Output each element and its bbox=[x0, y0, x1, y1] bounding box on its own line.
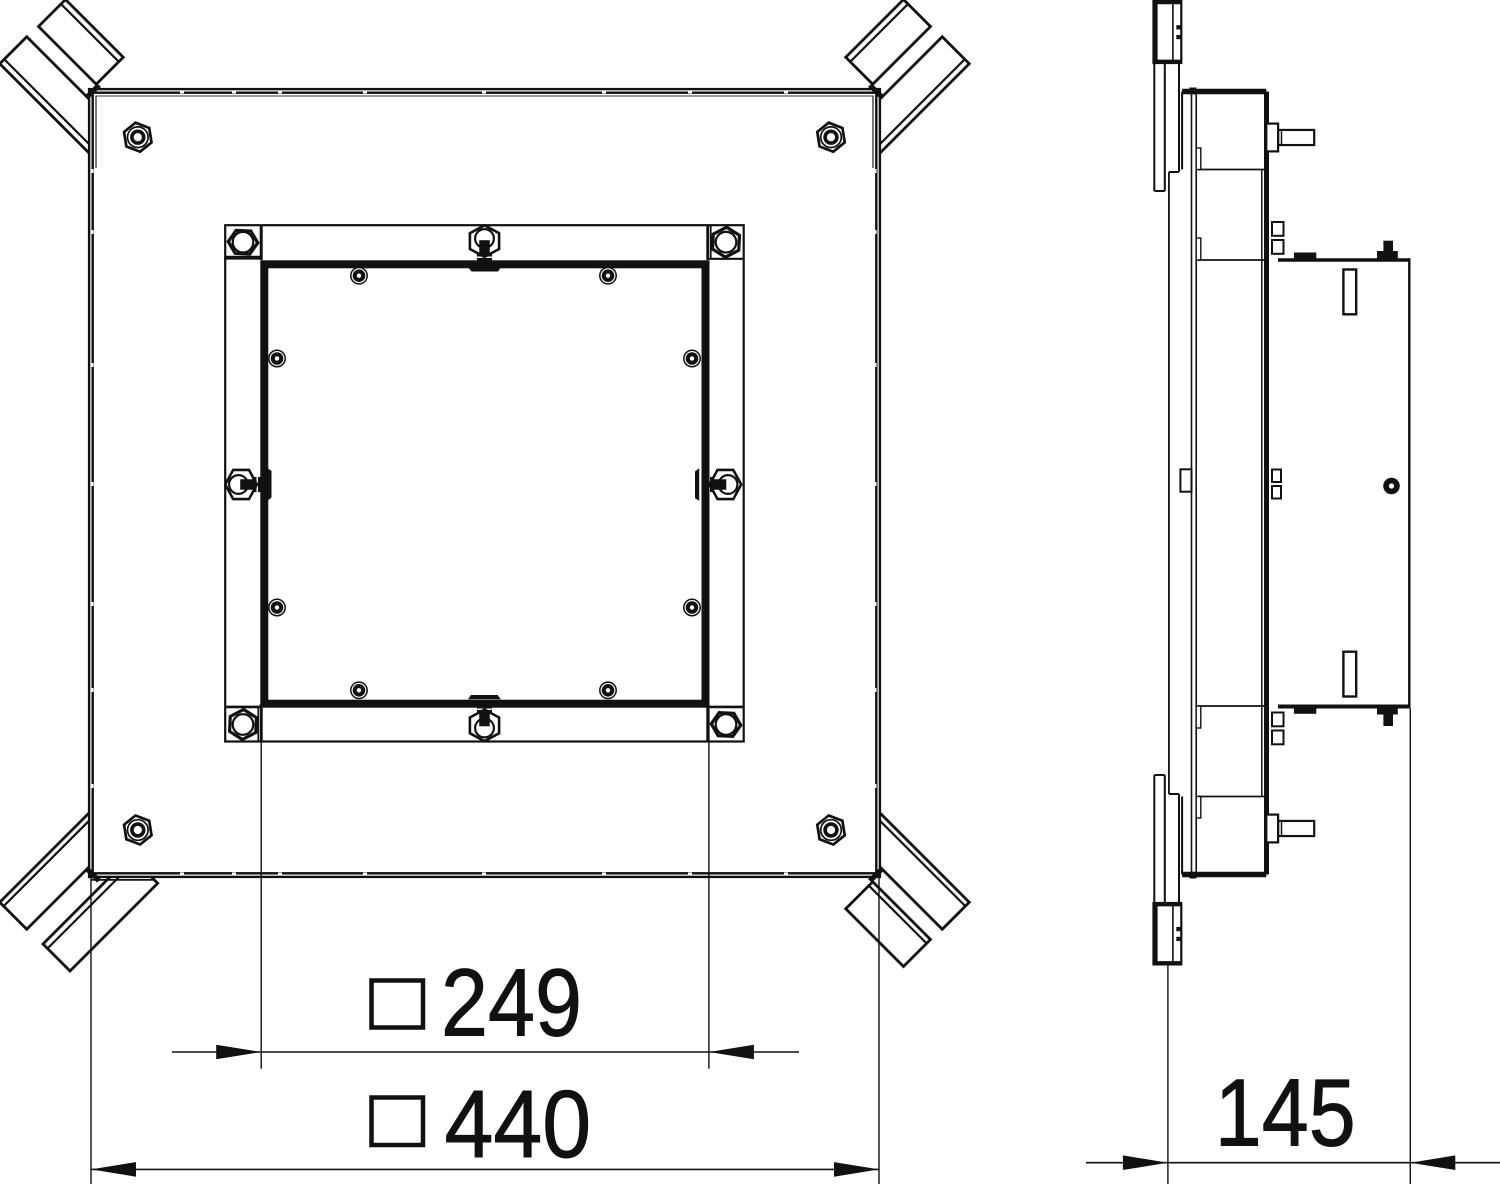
svg-text:145: 145 bbox=[1215, 1059, 1356, 1166]
svg-text:440: 440 bbox=[445, 1071, 592, 1178]
svg-text:249: 249 bbox=[441, 950, 582, 1057]
